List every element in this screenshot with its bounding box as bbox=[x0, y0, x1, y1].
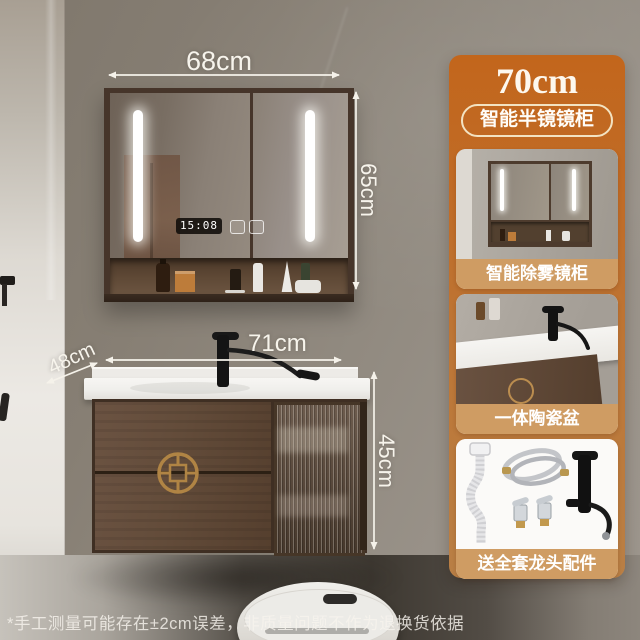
led-light-strip-left bbox=[133, 110, 143, 242]
mirror-door-right bbox=[253, 93, 348, 258]
fluted-glass-door bbox=[274, 402, 365, 556]
ceramic-basin-photo bbox=[456, 294, 618, 404]
mirror-clock-display: 15:08 bbox=[176, 218, 222, 234]
accessories-icon bbox=[456, 439, 618, 549]
feature-card-ceramic-basin: 一体陶瓷盆 bbox=[456, 294, 618, 434]
gold-medallion-handle bbox=[154, 449, 202, 497]
dimension-mirror-width: 68cm bbox=[186, 46, 252, 77]
white-jar bbox=[295, 280, 321, 293]
measurement-disclaimer: *手工测量可能存在±2cm误差，非质量问题不作为退换货依据 bbox=[7, 610, 477, 634]
soap-dish bbox=[225, 290, 245, 293]
feature-caption: 一体陶瓷盆 bbox=[456, 404, 618, 434]
mirror-cabinet: 15:08 bbox=[104, 88, 354, 302]
cosmetic-box bbox=[175, 271, 195, 292]
amber-bottle bbox=[156, 263, 170, 292]
cabinet-side-panel bbox=[360, 402, 367, 550]
feature-card-mirror-cabinet: 智能除雾镜柜 bbox=[456, 149, 618, 289]
vacuum-sensor bbox=[323, 594, 357, 604]
promo-sidebar: 70cm 智能半镜镜柜 智能除雾镜柜 bbox=[449, 55, 625, 578]
feature-card-faucet-accessories: 送全套龙头配件 bbox=[456, 439, 618, 579]
lotion-tube bbox=[253, 263, 263, 292]
mirror-cabinet-photo bbox=[456, 149, 618, 259]
feature-caption: 智能除雾镜柜 bbox=[456, 259, 618, 289]
mirror-touch-button-light bbox=[230, 220, 245, 234]
dimension-cabinet-height: 45cm bbox=[373, 434, 399, 488]
basin-faucet-icon bbox=[534, 296, 604, 360]
shower-pipe bbox=[2, 284, 7, 306]
dimension-counter-width: 71cm bbox=[248, 330, 307, 358]
product-image: 15:08 bbox=[0, 0, 640, 640]
wall-corner-highlight bbox=[45, 0, 57, 300]
led-light-strip-right bbox=[305, 110, 315, 242]
vanity-cabinet bbox=[92, 399, 367, 553]
mirror-touch-button-defog bbox=[249, 220, 264, 234]
faucet-accessories-photo bbox=[456, 439, 618, 549]
size-title: 70cm bbox=[449, 62, 625, 100]
feature-caption: 送全套龙头配件 bbox=[456, 549, 618, 579]
dimension-mirror-height: 65cm bbox=[355, 163, 381, 217]
soap-dispenser bbox=[230, 269, 241, 292]
product-type-badge: 智能半镜镜柜 bbox=[461, 104, 613, 137]
